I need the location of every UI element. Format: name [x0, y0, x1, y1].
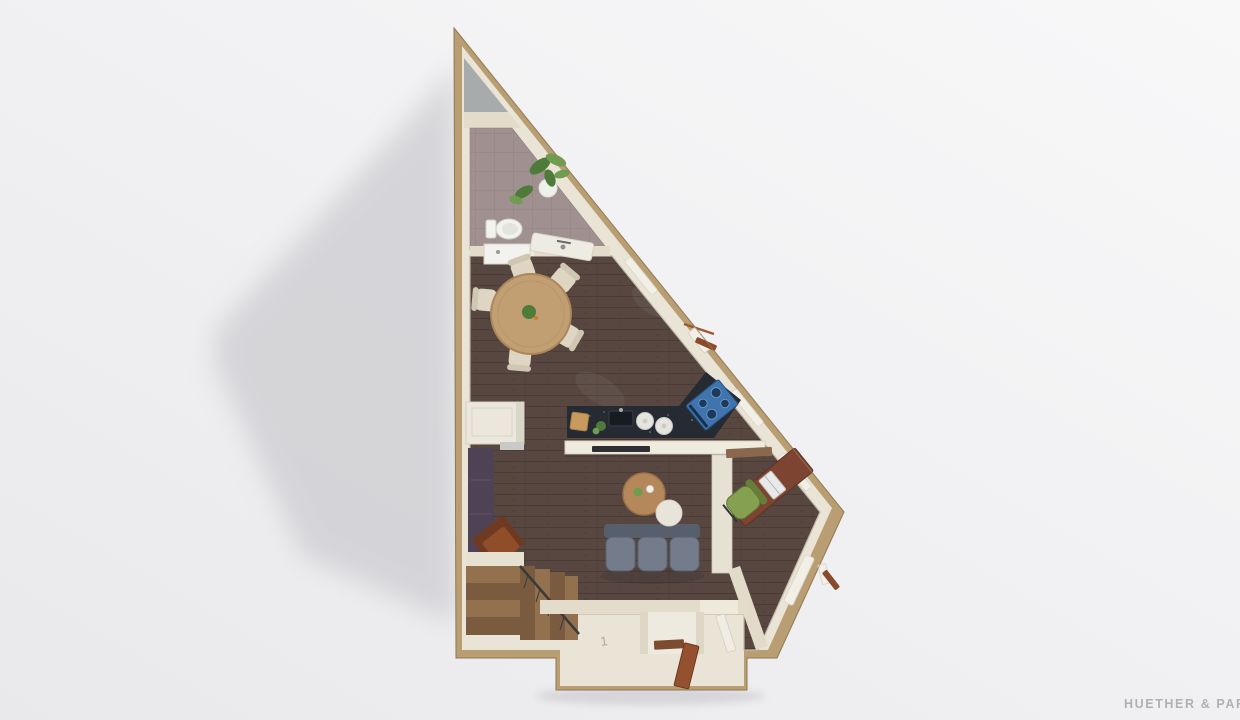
toilet-tank [486, 220, 496, 238]
stair-landing [466, 552, 524, 566]
floorplan-render: 1 HUETHER & PARTNE [0, 0, 1240, 720]
stair-tread [466, 617, 520, 635]
sofa-cushion [606, 537, 635, 571]
side-table [656, 500, 682, 526]
dining-table-plant [522, 305, 536, 319]
cabinet-side-shade [516, 402, 524, 444]
stair-tread [466, 600, 520, 617]
sink-faucet [619, 408, 623, 412]
toilet [486, 219, 522, 239]
cutting-board [570, 412, 589, 431]
coffee-table-plant [634, 488, 643, 497]
canister-lid [662, 424, 667, 429]
stair-tread [466, 566, 520, 583]
watermark: HUETHER & PARTNE [1124, 697, 1240, 711]
niche-wall [640, 612, 648, 654]
toilet-seat [502, 223, 518, 235]
door-mat [654, 639, 684, 650]
sofa-cushion [638, 537, 667, 571]
stair-tread [466, 583, 520, 600]
porch-floor [560, 650, 744, 686]
coffee-table-cup [647, 486, 654, 493]
entry-doorway [700, 600, 738, 614]
cabinet-shelf [500, 442, 524, 450]
canister-lid [643, 419, 648, 424]
partition-wall [712, 455, 732, 573]
kitchen-sink [609, 411, 633, 426]
vanity-faucet [496, 250, 500, 254]
sofa-back [604, 524, 700, 538]
bar-tray [592, 446, 650, 452]
dining-table-item [534, 316, 538, 320]
counter-plant-leaf [593, 428, 600, 435]
sofa-cushion [670, 537, 699, 571]
